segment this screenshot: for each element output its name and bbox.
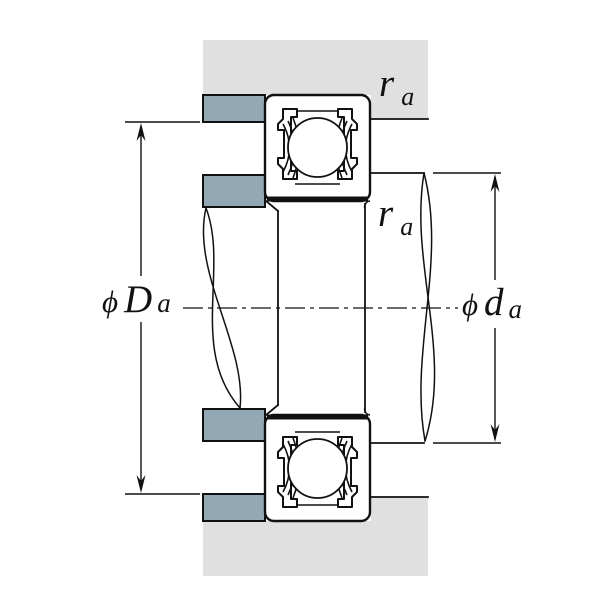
diagram-svg: ϕ D a ϕ d a r a r a	[0, 0, 600, 600]
label-ra-shaft: r a	[378, 192, 413, 241]
housing-shoulder-block-bottom	[203, 494, 265, 521]
bearing-mounting-diagram: ϕ D a ϕ d a r a r a	[0, 0, 600, 600]
shaft-shoulder-block-top	[203, 175, 265, 207]
label-phi-da: ϕ d a	[462, 281, 522, 324]
bearing-ball	[288, 118, 347, 177]
shaft-step-chamfer-top	[266, 201, 278, 211]
shaft-break-right	[421, 173, 435, 441]
bearing-bottom	[265, 415, 370, 521]
housing-shoulder-block-top	[203, 95, 265, 122]
bearing-top	[265, 95, 370, 201]
shaft-shoulder-block-bottom	[203, 409, 265, 441]
label-phi-Da: ϕ D a	[102, 278, 171, 321]
shaft-step-chamfer-bottom	[266, 405, 278, 415]
break-curve	[421, 173, 432, 441]
